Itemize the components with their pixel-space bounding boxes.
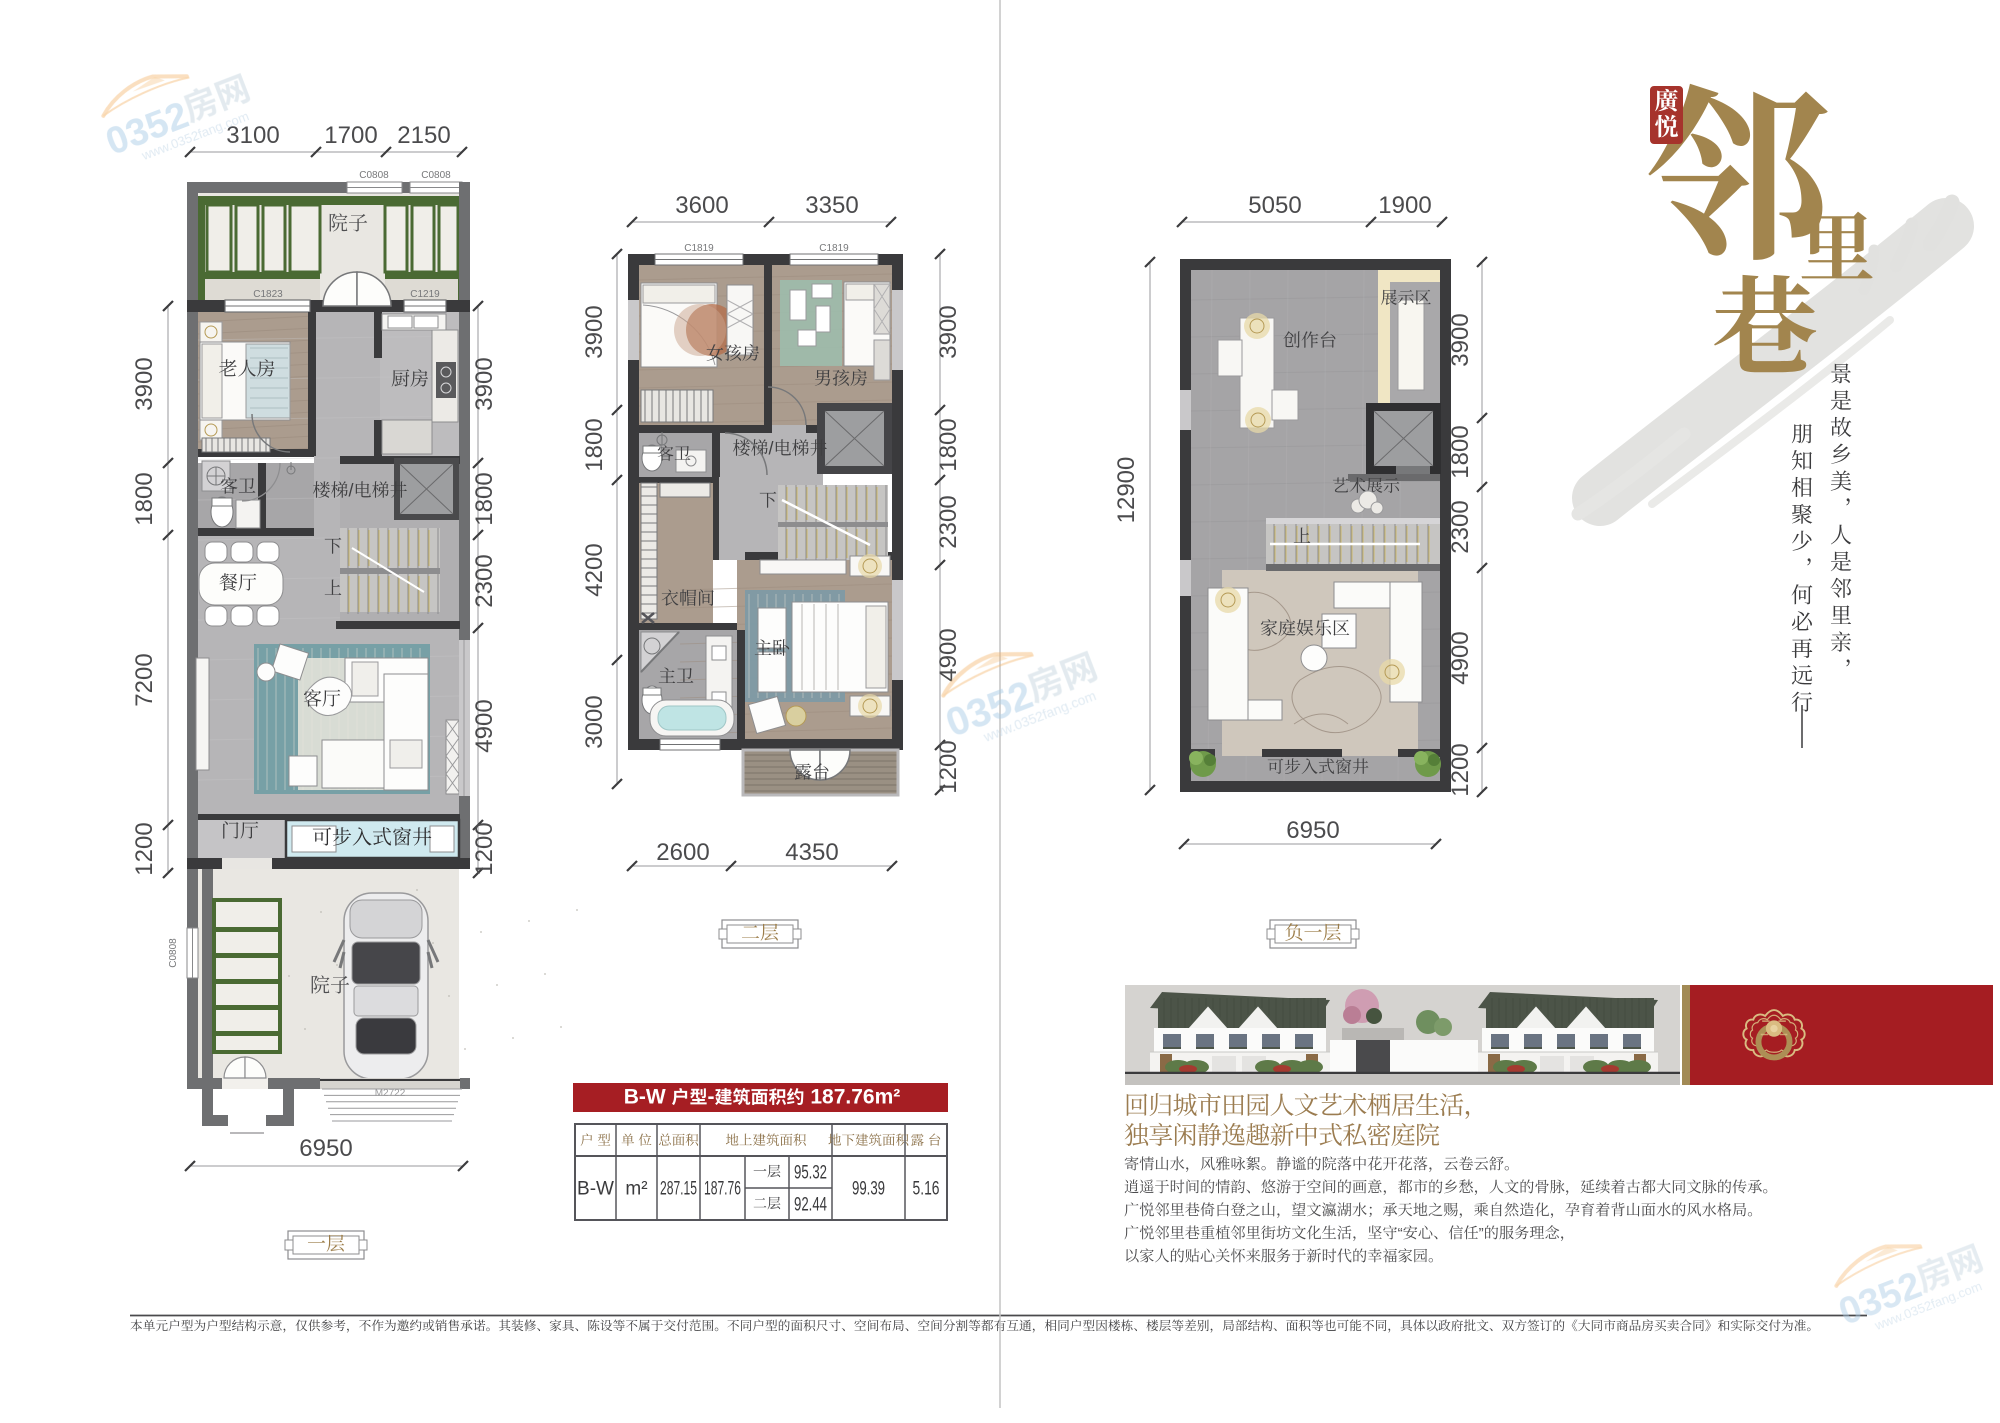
svg-text:187.76m²: 187.76m²	[805, 1085, 901, 1108]
svg-text:3600: 3600	[675, 192, 728, 219]
svg-text:287.15: 287.15	[660, 1179, 697, 1200]
svg-text:6950: 6950	[1286, 817, 1339, 844]
svg-text:3900: 3900	[471, 357, 498, 410]
svg-text:4200: 4200	[581, 543, 608, 596]
svg-text:3350: 3350	[805, 192, 858, 219]
svg-text:2300: 2300	[1447, 500, 1474, 553]
svg-text:C1819: C1819	[819, 243, 849, 254]
svg-text:5050: 5050	[1248, 192, 1301, 219]
svg-text:C0808: C0808	[359, 170, 389, 181]
svg-text:C1823: C1823	[253, 289, 283, 300]
svg-text:1200: 1200	[935, 740, 962, 793]
svg-text:7200: 7200	[131, 653, 158, 706]
svg-text:6950: 6950	[299, 1135, 352, 1162]
svg-text:1800: 1800	[471, 472, 498, 525]
svg-text:187.76: 187.76	[704, 1179, 741, 1200]
svg-text:B-W: B-W	[624, 1085, 672, 1108]
svg-text:C1219: C1219	[410, 289, 440, 300]
svg-text:1800: 1800	[1447, 425, 1474, 478]
svg-text:”: ”	[1479, 1225, 1484, 1242]
svg-text:3000: 3000	[581, 695, 608, 748]
svg-text:4900: 4900	[471, 699, 498, 752]
svg-text:/: /	[349, 480, 354, 500]
svg-text:M2722: M2722	[375, 1088, 406, 1099]
svg-text:1800: 1800	[581, 418, 608, 471]
svg-text:2300: 2300	[471, 554, 498, 607]
svg-text:C0808: C0808	[168, 938, 179, 968]
svg-text:5.16: 5.16	[913, 1179, 940, 1200]
svg-text:12900: 12900	[1113, 457, 1140, 524]
svg-text:2600: 2600	[656, 839, 709, 866]
svg-text:3900: 3900	[935, 305, 962, 358]
svg-text:C0808: C0808	[421, 170, 451, 181]
svg-text:1200: 1200	[1447, 743, 1474, 796]
svg-text:3900: 3900	[581, 305, 608, 358]
svg-text:99.39: 99.39	[852, 1179, 885, 1200]
svg-text:“: “	[1398, 1225, 1403, 1242]
svg-text:92.44: 92.44	[794, 1195, 827, 1216]
svg-text:C1819: C1819	[684, 243, 714, 254]
svg-text:4350: 4350	[785, 839, 838, 866]
svg-text:B-W: B-W	[577, 1179, 614, 1200]
svg-text:2150: 2150	[397, 122, 450, 149]
svg-text:1200: 1200	[131, 822, 158, 875]
svg-text:2300: 2300	[935, 495, 962, 548]
svg-text:1900: 1900	[1378, 192, 1431, 219]
svg-text:1800: 1800	[131, 472, 158, 525]
svg-text:4900: 4900	[1447, 631, 1474, 684]
svg-text:1800: 1800	[935, 418, 962, 471]
svg-text:1200: 1200	[471, 822, 498, 875]
svg-text:1700: 1700	[324, 122, 377, 149]
svg-text:-: -	[708, 1085, 715, 1108]
svg-text:m²: m²	[625, 1179, 647, 1200]
svg-text:3900: 3900	[1447, 313, 1474, 366]
svg-text:/: /	[769, 438, 774, 458]
svg-text:95.32: 95.32	[794, 1163, 827, 1184]
svg-text:3900: 3900	[131, 357, 158, 410]
